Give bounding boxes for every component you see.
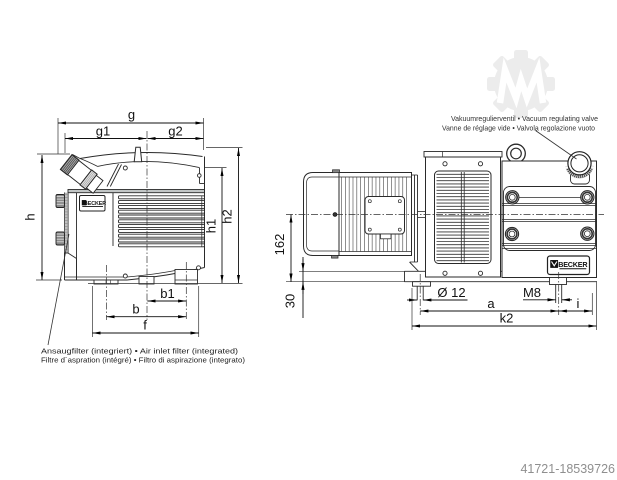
svg-text:b1: b1 [160, 286, 174, 301]
svg-text:M8: M8 [523, 285, 541, 300]
svg-text:g: g [128, 107, 135, 122]
svg-text:g2: g2 [168, 124, 182, 139]
svg-text:30: 30 [283, 294, 298, 308]
svg-text:k2: k2 [500, 311, 514, 326]
svg-text:Filtre d´aspration (intégré) •: Filtre d´aspration (intégré) • Filtro di… [41, 356, 246, 365]
svg-text:Ø 12: Ø 12 [437, 285, 465, 300]
svg-text:BECKER: BECKER [558, 260, 588, 269]
svg-text:h: h [23, 213, 38, 220]
svg-text:f: f [143, 318, 147, 333]
svg-text:g1: g1 [96, 124, 110, 139]
svg-text:b: b [132, 302, 139, 317]
svg-text:Vakuumregulierventil • Vacuum: Vakuumregulierventil • Vacuum regulating… [451, 114, 598, 123]
svg-text:h2: h2 [220, 209, 235, 223]
svg-text:41721-18539726: 41721-18539726 [520, 462, 615, 476]
svg-text:Ansaugfilter (integriert) • Ai: Ansaugfilter (integriert) • Air inlet fi… [41, 347, 239, 356]
svg-text:162: 162 [272, 234, 287, 256]
svg-text:h1: h1 [204, 219, 219, 233]
svg-text:a: a [487, 296, 495, 311]
svg-text:Vanne de réglage vide • Valvol: Vanne de réglage vide • Valvola regolazi… [442, 124, 595, 133]
svg-text:i: i [577, 296, 580, 311]
